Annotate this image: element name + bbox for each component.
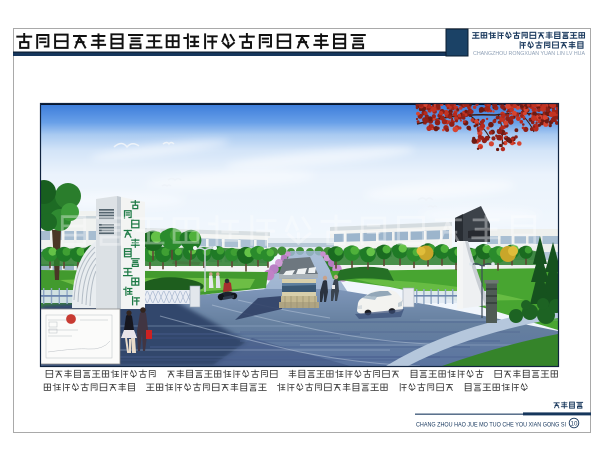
svg-text:CHANGZHOU RONGXUAN YUAN LIN LV: CHANGZHOU RONGXUAN YUAN LIN LV HUA bbox=[473, 51, 586, 57]
svg-text:CHANG ZHOU HAO JUE MO TUO CHE: CHANG ZHOU HAO JUE MO TUO CHE YOU XIAN G… bbox=[416, 422, 566, 429]
svg-text:10: 10 bbox=[571, 420, 578, 427]
